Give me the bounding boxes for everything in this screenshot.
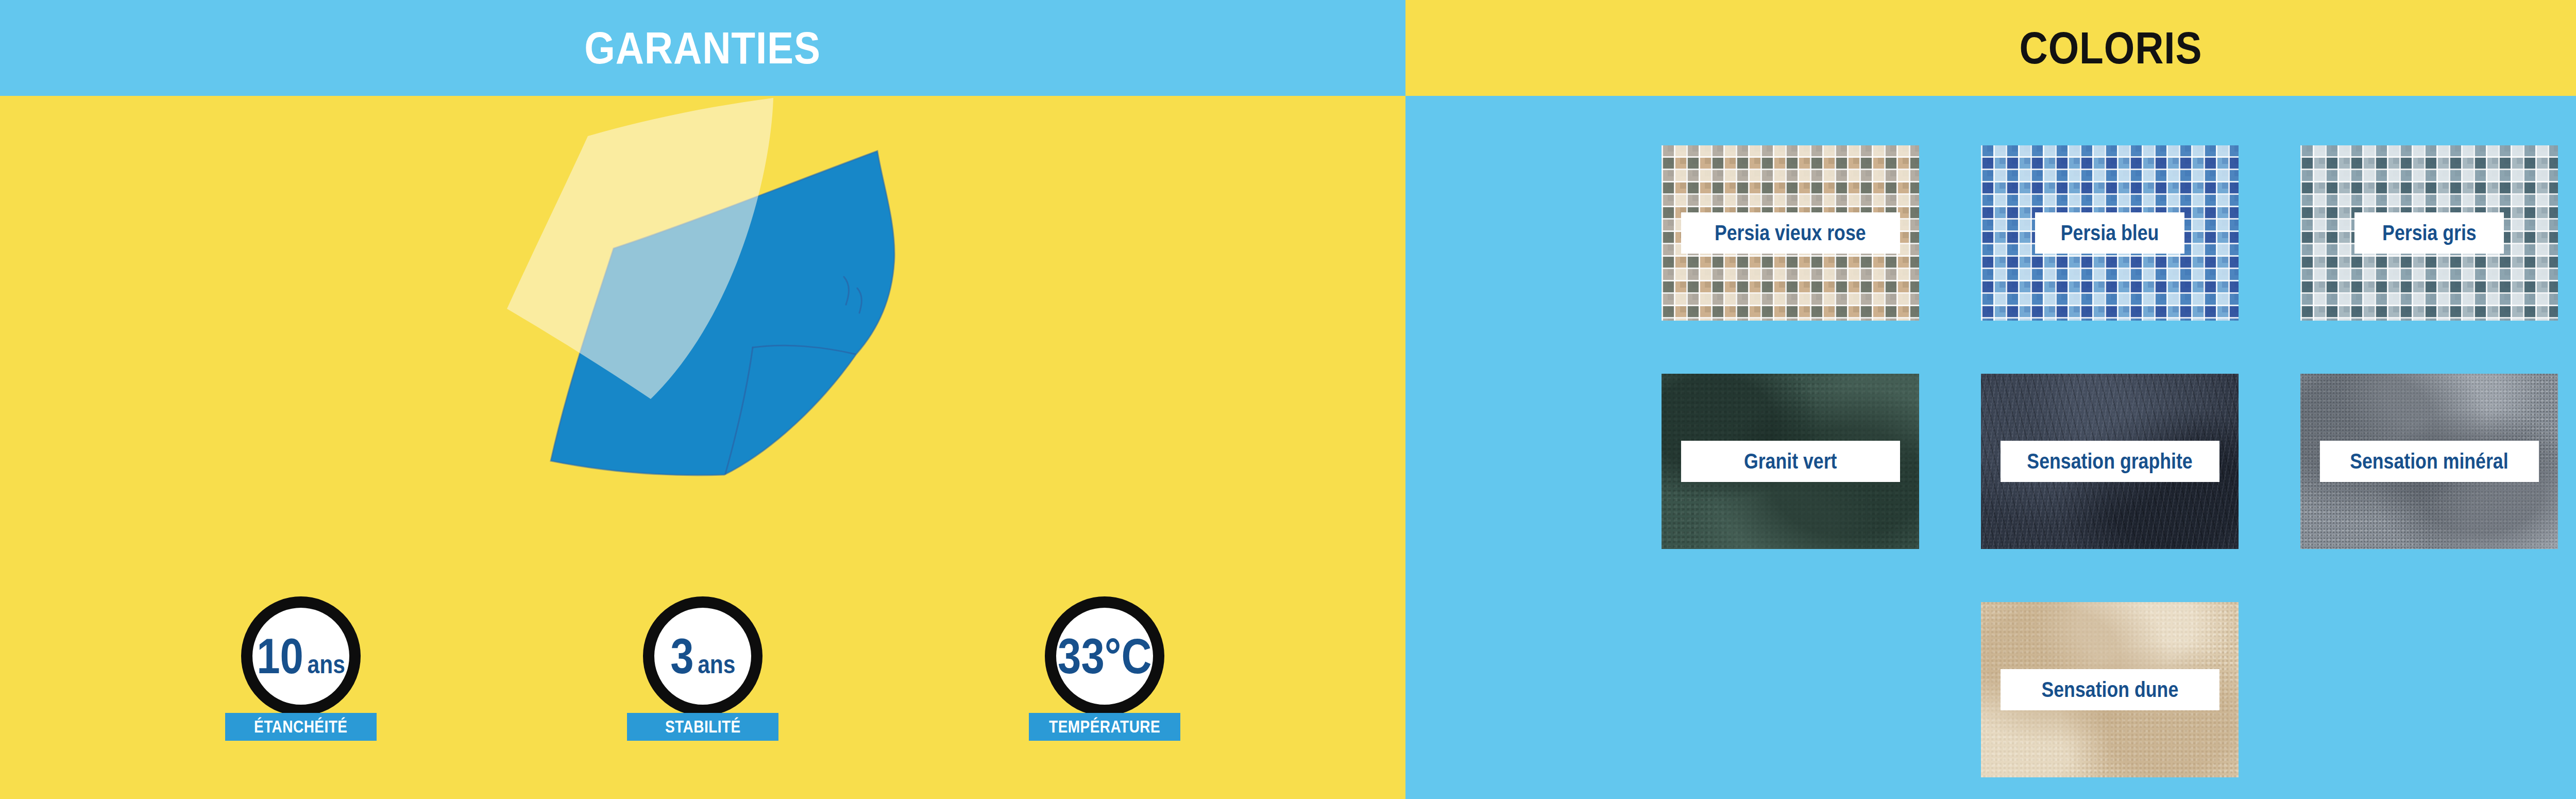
color-swatch-mosaic-rose: Persia vieux rose	[1662, 145, 1919, 321]
garanties-header: GARANTIES	[0, 0, 1405, 96]
badge-label: ÉTANCHÉITÉ	[225, 713, 377, 741]
swatch-name: Granit vert	[1744, 449, 1837, 474]
liner-sheets-illustration	[489, 95, 922, 503]
swatch-label: Persia bleu	[2035, 212, 2184, 254]
swatch-name: Sensation dune	[2041, 677, 2178, 702]
swatch-label: Sensation dune	[2001, 669, 2219, 710]
swatch-name: Persia gris	[2382, 221, 2477, 245]
swatch-name: Persia vieux rose	[1715, 221, 1866, 245]
garanties-title: GARANTIES	[585, 22, 821, 74]
coloris-header: COLORIS	[1405, 0, 2576, 96]
badge-circle: 33°C	[1045, 596, 1164, 716]
color-swatch-dune: Sensation dune	[1981, 602, 2239, 777]
badge-label: STABILITÉ	[627, 713, 778, 741]
color-swatches: Persia vieux rosePersia bleuPersia grisG…	[1662, 145, 2558, 777]
badge-value: 33°C	[1058, 631, 1151, 681]
swatch-label: Sensation minéral	[2320, 441, 2539, 482]
swatch-label: Sensation graphite	[2001, 441, 2219, 482]
product-brochure: GARANTIES 10ansÉTANCHÉITÉ3ansSTABILITÉ33…	[0, 0, 2576, 799]
color-swatch-mosaic-bleu: Persia bleu	[1981, 145, 2239, 321]
swatch-label: Granit vert	[1681, 441, 1900, 482]
color-swatch-mosaic-gris: Persia gris	[2300, 145, 2558, 321]
color-swatch-mineral: Sensation minéral	[2300, 374, 2558, 549]
swatch-label: Persia vieux rose	[1681, 212, 1900, 254]
warranty-badge: 3ansSTABILITÉ	[627, 596, 778, 741]
warranty-badge: 33°CTEMPÉRATURE	[1029, 596, 1180, 741]
badge-number: 10	[257, 631, 303, 681]
badge-value: 3ans	[670, 631, 735, 681]
warranty-badges: 10ansÉTANCHÉITÉ3ansSTABILITÉ33°CTEMPÉRAT…	[0, 596, 1405, 741]
coloris-title: COLORIS	[2019, 22, 2202, 74]
color-swatch-graphite: Sensation graphite	[1981, 374, 2239, 549]
warranty-badge: 10ansÉTANCHÉITÉ	[225, 596, 377, 741]
swatch-name: Sensation minéral	[2350, 449, 2509, 474]
badge-unit: ans	[308, 652, 345, 677]
badge-circle: 10ans	[241, 596, 361, 716]
badge-number: 33°C	[1058, 631, 1151, 681]
swatch-name: Persia bleu	[2061, 221, 2159, 245]
color-swatch-granit-vert: Granit vert	[1662, 374, 1919, 549]
badge-unit: ans	[698, 652, 735, 677]
swatch-label: Persia gris	[2354, 212, 2504, 254]
badge-circle: 3ans	[643, 596, 762, 716]
badge-number: 3	[670, 631, 693, 681]
garanties-panel: GARANTIES 10ansÉTANCHÉITÉ3ansSTABILITÉ33…	[0, 0, 1405, 799]
badge-value: 10ans	[257, 631, 345, 681]
swatch-name: Sensation graphite	[2027, 449, 2192, 474]
badge-label: TEMPÉRATURE	[1029, 713, 1180, 741]
coloris-panel: COLORIS Persia vieux rosePersia bleuPers…	[1405, 0, 2576, 799]
